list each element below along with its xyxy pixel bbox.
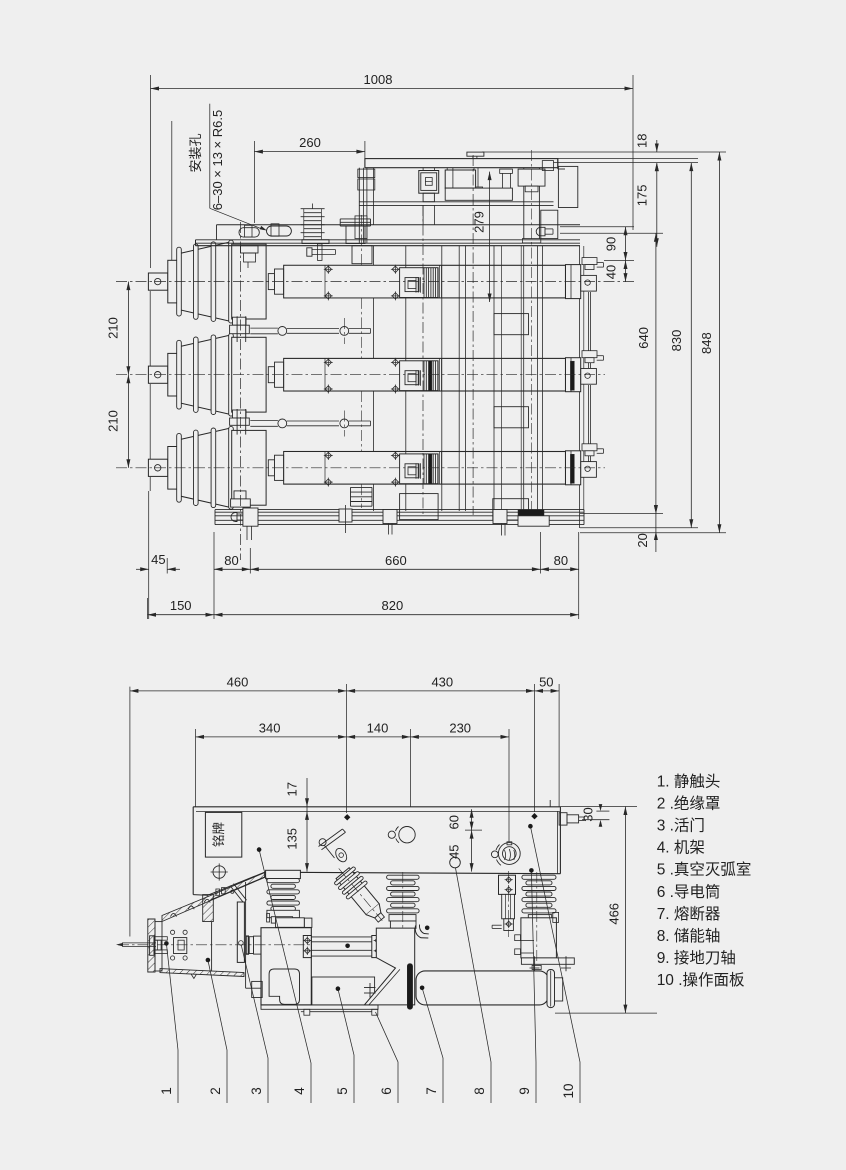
- svg-text:50: 50: [539, 674, 553, 689]
- svg-text:10 .操作面板: 10 .操作面板: [657, 971, 745, 989]
- svg-text:340: 340: [259, 720, 281, 735]
- svg-text:460: 460: [227, 674, 249, 689]
- svg-text:3: 3: [249, 1087, 264, 1095]
- svg-text:6–30 × 13 × R6.5: 6–30 × 13 × R6.5: [210, 110, 225, 210]
- svg-text:17: 17: [284, 782, 299, 796]
- svg-text:铭牌: 铭牌: [211, 822, 226, 847]
- svg-text:6: 6: [379, 1087, 394, 1095]
- svg-text:135: 135: [284, 828, 299, 850]
- svg-text:4: 4: [292, 1087, 307, 1095]
- svg-text:20: 20: [635, 533, 650, 547]
- svg-text:45: 45: [151, 552, 165, 567]
- svg-text:2 .绝缘罩: 2 .绝缘罩: [657, 795, 721, 813]
- svg-text:7. 熔断器: 7. 熔断器: [657, 905, 721, 923]
- svg-text:18: 18: [635, 133, 650, 147]
- svg-text:10: 10: [561, 1083, 576, 1098]
- svg-text:640: 640: [636, 327, 651, 349]
- svg-text:4. 机架: 4. 机架: [657, 839, 705, 857]
- svg-text:40: 40: [603, 265, 618, 279]
- svg-text:260: 260: [299, 135, 321, 150]
- svg-text:279: 279: [472, 211, 487, 233]
- svg-text:安装孔: 安装孔: [188, 133, 203, 172]
- svg-text:175: 175: [635, 185, 650, 207]
- svg-text:60: 60: [447, 815, 462, 829]
- svg-text:150: 150: [170, 598, 192, 613]
- svg-text:660: 660: [385, 553, 407, 568]
- svg-text:5: 5: [335, 1087, 350, 1095]
- svg-text:210: 210: [106, 410, 121, 432]
- svg-text:466: 466: [606, 903, 621, 925]
- svg-text:9: 9: [517, 1087, 532, 1095]
- svg-text:7: 7: [424, 1087, 439, 1095]
- svg-text:5 .真空灭弧室: 5 .真空灭弧室: [657, 861, 752, 879]
- svg-text:848: 848: [699, 332, 714, 354]
- svg-text:1. 静触头: 1. 静触头: [657, 773, 721, 791]
- svg-text:820: 820: [382, 598, 404, 613]
- svg-text:8. 储能轴: 8. 储能轴: [657, 927, 721, 945]
- svg-text:430: 430: [431, 674, 453, 689]
- svg-text:8: 8: [472, 1087, 487, 1095]
- svg-text:230: 230: [449, 720, 471, 735]
- svg-text:6 .导电筒: 6 .导电筒: [657, 883, 721, 901]
- svg-text:80: 80: [554, 553, 568, 568]
- svg-text:2: 2: [208, 1087, 223, 1095]
- svg-text:210: 210: [106, 317, 121, 339]
- svg-text:80: 80: [224, 553, 238, 568]
- svg-text:1: 1: [159, 1087, 174, 1095]
- svg-text:830: 830: [669, 330, 684, 352]
- svg-text:1008: 1008: [364, 72, 393, 87]
- svg-text:45: 45: [447, 844, 462, 858]
- svg-text:3 .活门: 3 .活门: [657, 817, 705, 835]
- svg-text:9. 接地刀轴: 9. 接地刀轴: [657, 949, 736, 967]
- svg-text:140: 140: [367, 720, 389, 735]
- svg-text:90: 90: [603, 237, 618, 251]
